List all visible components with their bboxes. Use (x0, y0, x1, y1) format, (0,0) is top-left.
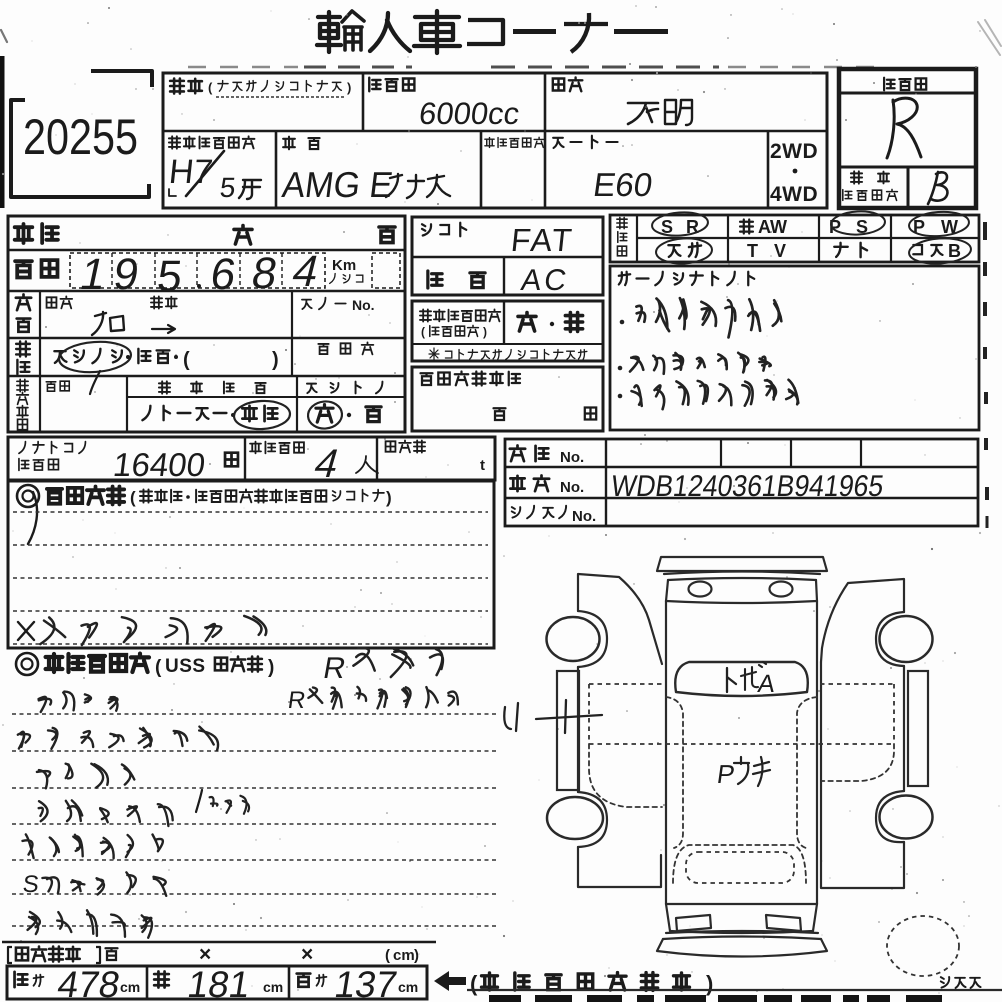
svg-text:(: ( (421, 325, 425, 339)
svg-text:WDB1240361B941965: WDB1240361B941965 (609, 470, 886, 503)
svg-text:cm: cm (263, 979, 283, 995)
svg-text:6000cc: 6000cc (417, 96, 521, 131)
svg-text:(: ( (470, 971, 478, 996)
svg-text:t: t (480, 457, 485, 474)
svg-text:B: B (948, 241, 961, 261)
svg-text:(: ( (183, 349, 190, 371)
svg-text:No.: No. (560, 479, 584, 496)
svg-text:E60: E60 (591, 167, 655, 204)
svg-text:): ) (272, 349, 279, 371)
svg-text:181: 181 (185, 963, 253, 1002)
svg-text:cm: cm (398, 979, 418, 995)
svg-text:Km: Km (332, 257, 356, 274)
svg-text:): ) (414, 947, 419, 964)
svg-text:No.: No. (560, 449, 584, 466)
svg-text:5: 5 (155, 252, 185, 301)
svg-text:FAT: FAT (509, 222, 575, 258)
svg-text:cm: cm (120, 979, 140, 995)
svg-text:(: ( (155, 657, 162, 678)
svg-text:AC: AC (519, 264, 571, 297)
svg-text:T: T (747, 241, 758, 261)
svg-text:AW: AW (758, 217, 787, 237)
svg-text:No.: No. (352, 297, 375, 313)
svg-text:5: 5 (218, 172, 237, 203)
svg-text:): ) (706, 971, 713, 996)
svg-text:No.: No. (572, 508, 596, 525)
svg-text:20255: 20255 (23, 109, 138, 165)
svg-text:USS: USS (165, 656, 206, 677)
svg-text:(: ( (208, 80, 213, 95)
svg-text:): ) (268, 657, 274, 678)
svg-text:4WD: 4WD (770, 183, 818, 206)
svg-text:137: 137 (332, 963, 400, 1002)
svg-text:478: 478 (55, 963, 123, 1002)
svg-text:2WD: 2WD (770, 140, 818, 163)
svg-text:(: ( (130, 488, 136, 507)
svg-text:): ) (347, 80, 351, 95)
svg-text:16400: 16400 (111, 447, 207, 484)
svg-text:(: ( (385, 947, 390, 964)
svg-text:S: S (21, 871, 40, 898)
svg-text:AMG E: AMG E (280, 164, 395, 205)
svg-text:V: V (774, 241, 786, 261)
svg-text:cm: cm (393, 947, 415, 964)
svg-text:): ) (386, 488, 392, 507)
svg-text:): ) (483, 325, 487, 339)
svg-text:×: × (301, 943, 313, 966)
